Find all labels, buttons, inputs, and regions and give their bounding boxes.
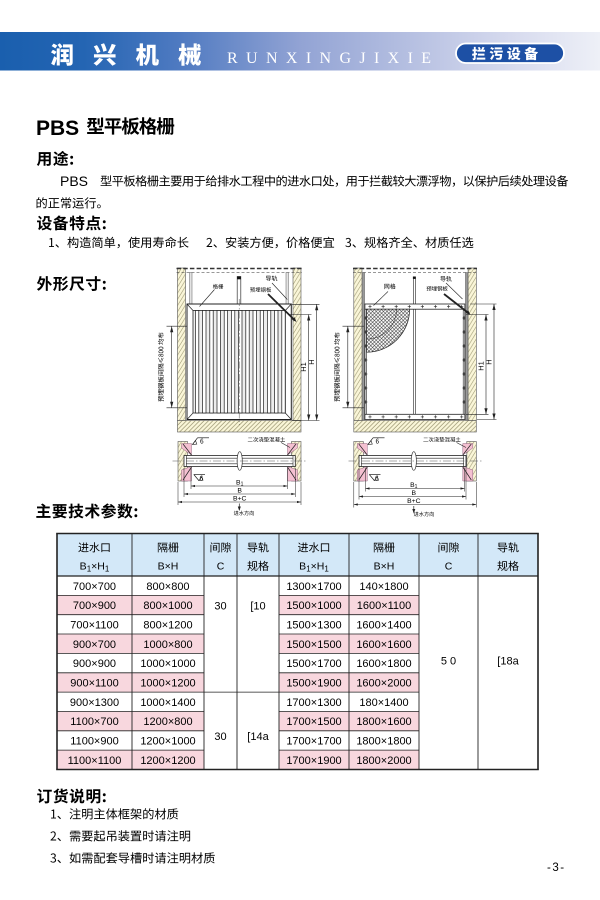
- svg-text:30: 30: [214, 731, 226, 743]
- svg-text:1600×2000: 1600×2000: [356, 678, 411, 690]
- svg-text:B+C: B+C: [407, 498, 421, 505]
- svg-text:1100×700: 1100×700: [70, 716, 118, 728]
- svg-text:900×900: 900×900: [73, 658, 116, 670]
- svg-text:1000×1400: 1000×1400: [140, 697, 195, 709]
- svg-text:[14a: [14a: [247, 731, 269, 743]
- svg-text:1700×1700: 1700×1700: [286, 736, 341, 748]
- svg-text:B1: B1: [410, 482, 418, 490]
- svg-text:H: H: [485, 359, 494, 364]
- svg-text:1500×1300: 1500×1300: [286, 620, 341, 632]
- svg-text:1200×1200: 1200×1200: [140, 755, 195, 767]
- svg-text:1500×1500: 1500×1500: [286, 639, 341, 651]
- svg-text:1500×1000: 1500×1000: [286, 600, 341, 612]
- svg-text:1600×1100: 1600×1100: [357, 600, 412, 612]
- svg-text:5 0: 5 0: [441, 656, 456, 668]
- svg-text:1600×1600: 1600×1600: [356, 639, 411, 651]
- svg-text:1000×1200: 1000×1200: [140, 678, 195, 690]
- svg-text:1800×1600: 1800×1600: [356, 716, 411, 728]
- svg-text:1800×2000: 1800×2000: [356, 755, 411, 767]
- svg-text:1100×900: 1100×900: [70, 736, 118, 748]
- svg-text:1700×1500: 1700×1500: [286, 716, 341, 728]
- svg-text:30: 30: [214, 601, 226, 613]
- svg-text:1200×1000: 1200×1000: [140, 736, 195, 748]
- svg-text:1700×1300: 1700×1300: [286, 697, 341, 709]
- svg-text:B+C: B+C: [233, 496, 247, 503]
- svg-text:B×H: B×H: [374, 561, 395, 573]
- svg-text:-3-: -3-: [547, 862, 566, 874]
- svg-text:C: C: [445, 561, 453, 573]
- svg-text:C: C: [217, 561, 225, 573]
- svg-text:B: B: [237, 488, 242, 495]
- svg-text:800×1200: 800×1200: [143, 620, 192, 632]
- svg-text:[18a: [18a: [497, 656, 519, 668]
- svg-text:900×1300: 900×1300: [70, 697, 119, 709]
- svg-text:B1: B1: [236, 479, 244, 487]
- svg-text:1500×1700: 1500×1700: [286, 658, 341, 670]
- svg-text:PBS: PBS: [36, 117, 79, 140]
- svg-text:H: H: [307, 359, 316, 364]
- svg-text:B×H: B×H: [158, 561, 179, 573]
- svg-text:PBS: PBS: [60, 173, 88, 189]
- svg-text:1800×1800: 1800×1800: [356, 736, 411, 748]
- svg-text:1200×800: 1200×800: [143, 716, 192, 728]
- svg-text:700×900: 700×900: [73, 600, 116, 612]
- svg-text:700×700: 700×700: [73, 581, 116, 593]
- svg-text:900×1100: 900×1100: [70, 678, 118, 690]
- svg-text:140×1800: 140×1800: [359, 581, 408, 593]
- svg-text:800×1000: 800×1000: [143, 600, 192, 612]
- svg-text:1600×1400: 1600×1400: [356, 620, 411, 632]
- svg-text:[10: [10: [250, 601, 265, 613]
- svg-text:1100×1100: 1100×1100: [68, 755, 122, 767]
- svg-text:1300×1700: 1300×1700: [286, 581, 341, 593]
- svg-text:1600×1800: 1600×1800: [356, 658, 411, 670]
- svg-text:1700×1900: 1700×1900: [286, 755, 341, 767]
- svg-text:700×1100: 700×1100: [70, 620, 118, 632]
- svg-text:B: B: [412, 490, 417, 497]
- svg-text:800×800: 800×800: [146, 581, 189, 593]
- svg-text:1500×1900: 1500×1900: [286, 678, 341, 690]
- svg-text:180×1400: 180×1400: [359, 697, 408, 709]
- svg-text:900×700: 900×700: [73, 639, 116, 651]
- svg-text:RUNXINGJIXIE: RUNXINGJIXIE: [227, 50, 439, 67]
- svg-text:1000×1000: 1000×1000: [140, 658, 195, 670]
- svg-text:1000×800: 1000×800: [143, 639, 192, 651]
